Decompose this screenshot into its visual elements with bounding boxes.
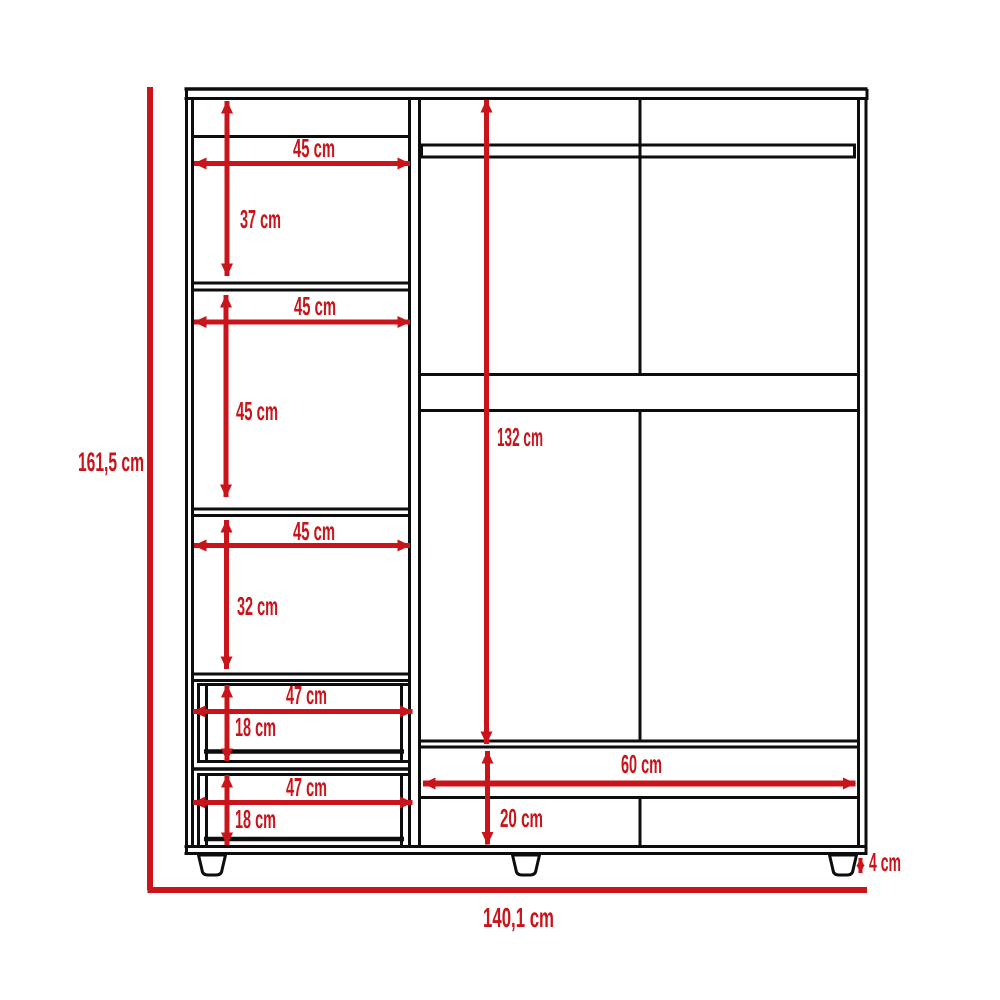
- legs: [199, 855, 857, 875]
- drawer1-height-label: 18 cm: [235, 712, 276, 742]
- right-section-height-label: 132 cm: [497, 422, 543, 452]
- shelf2-width-label: 45 cm: [294, 291, 336, 321]
- drawer2-height-label: 18 cm: [235, 804, 276, 834]
- cabinet-outline: [185, 89, 868, 854]
- section2-height-label: 45 cm: [236, 396, 278, 426]
- drawer1-width-label: 47 cm: [286, 680, 327, 710]
- section3-height-label: 32 cm: [237, 591, 278, 621]
- overall-height-label: 161,5 cm: [78, 447, 144, 477]
- shelf-2: [193, 283, 409, 290]
- wardrobe-dimension-diagram: 161,5 cm 140,1 cm 45 cm 37 cm 45 cm 45 c…: [0, 0, 1000, 1000]
- leg-right: [830, 855, 857, 875]
- drawer2-width-label: 47 cm: [286, 772, 327, 802]
- shelf1-width-label: 45 cm: [293, 133, 335, 163]
- leg-height-label: 4 cm: [869, 847, 901, 877]
- leg-left: [199, 855, 226, 875]
- bottom-right-width-label: 60 cm: [621, 749, 662, 779]
- bottom-right-height-label: 20 cm: [500, 803, 543, 833]
- shelf-3: [193, 509, 409, 516]
- shelf3-width-label: 45 cm: [293, 516, 335, 546]
- overall-width-label: 140,1 cm: [483, 902, 554, 933]
- leg-center: [513, 855, 540, 875]
- section1-height-label: 37 cm: [240, 204, 281, 234]
- diagram-canvas: 161,5 cm 140,1 cm 45 cm 37 cm 45 cm 45 c…: [0, 0, 1000, 1000]
